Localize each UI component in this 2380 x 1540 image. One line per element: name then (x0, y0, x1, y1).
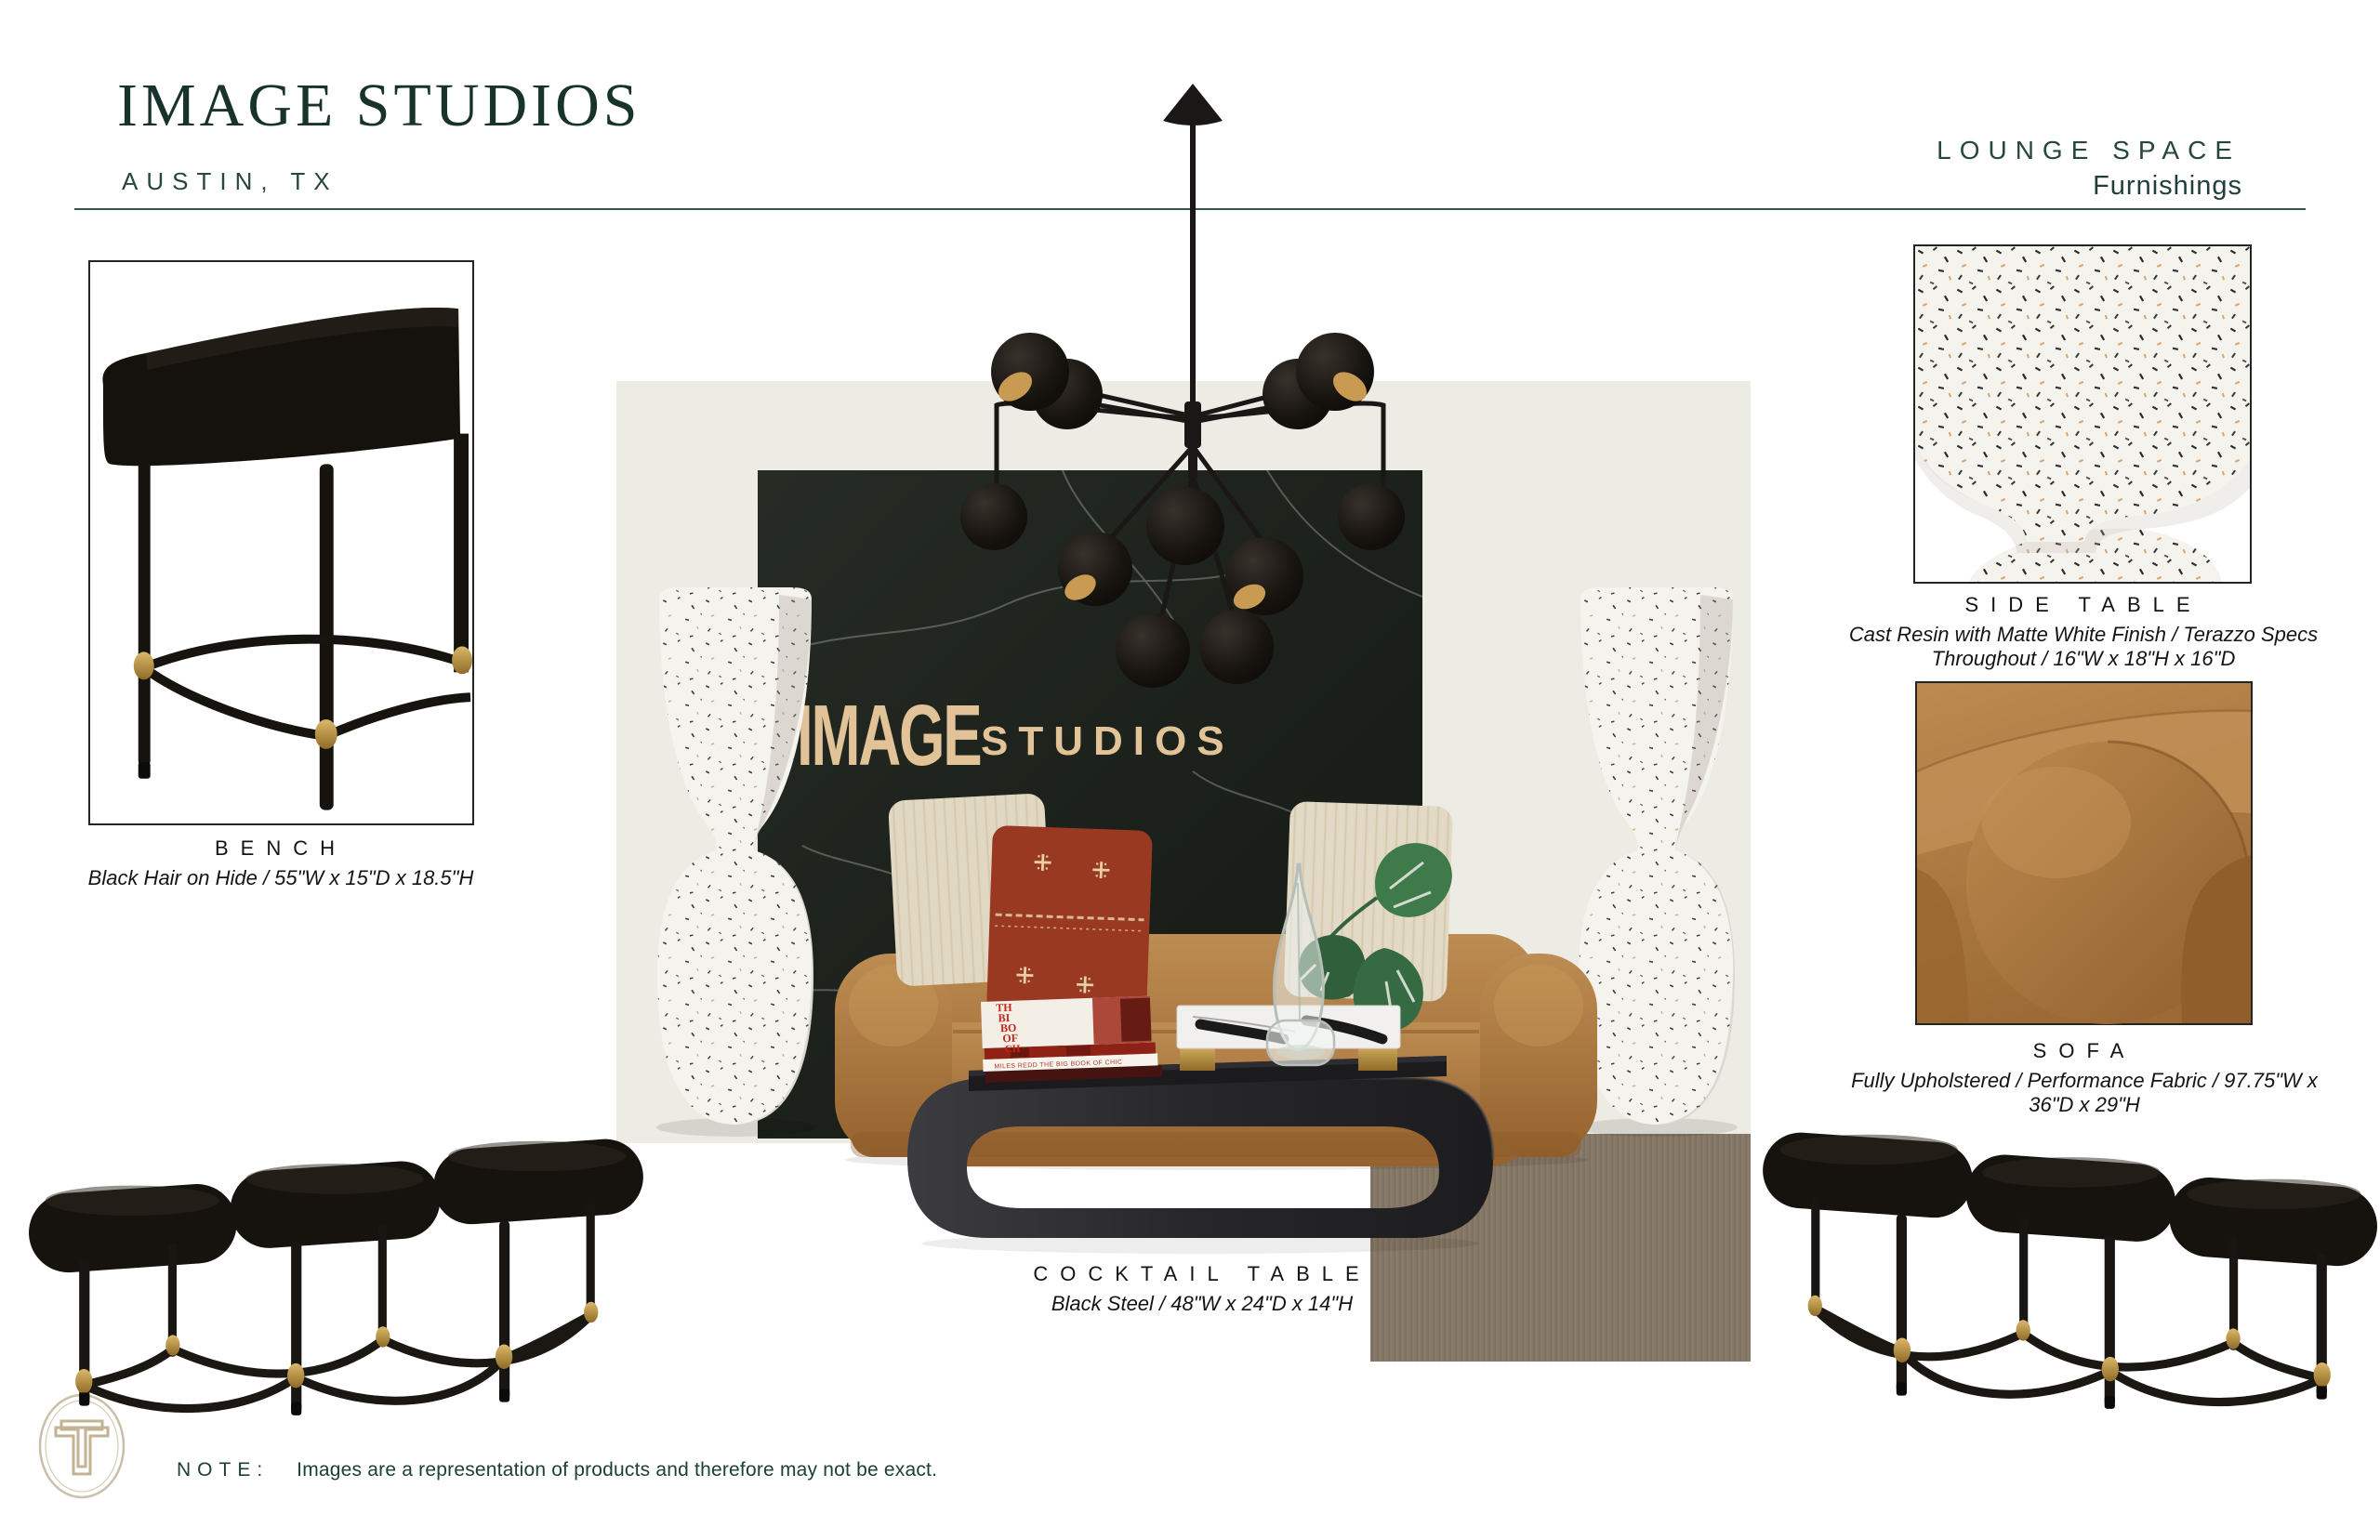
sofa-label: SOFA (1759, 1039, 2380, 1063)
chandelier-illustration (948, 74, 1432, 688)
side-table-product-card (1913, 244, 2252, 584)
side-table-closeup-illustration (1915, 246, 2250, 582)
bench-label: BENCH (0, 836, 606, 861)
bench-caption: BENCH Black Hair on Hide / 55"W x 15"D x… (0, 836, 606, 890)
page-title: IMAGE STUDIOS (117, 71, 641, 141)
moodboard-page: IMAGE STUDIOS AUSTIN, TX LOUNGE SPACE Fu… (0, 0, 2380, 1540)
side-table-spec-2: Throughout / 16"W x 18"H x 16"D (1758, 647, 2380, 671)
sofa-spec-1: Fully Upholstered / Performance Fabric /… (1759, 1069, 2380, 1093)
cocktail-table-spec: Black Steel / 48"W x 24"D x 14"H (877, 1292, 1527, 1316)
wall-logo-word-studios: STUDIOS (981, 718, 1235, 764)
chandelier-globes (960, 333, 1405, 688)
side-table-label: SIDE TABLE (1758, 593, 2380, 617)
sofa-closeup-illustration (1917, 683, 2251, 1023)
page-location: AUSTIN, TX (122, 167, 338, 196)
bench-closeup-illustration (90, 262, 472, 823)
side-table-caption: SIDE TABLE Cast Resin with Matte White F… (1758, 593, 2380, 671)
side-table-spec-1: Cast Resin with Matte White Finish / Ter… (1758, 623, 2380, 647)
note-label: NOTE: (177, 1459, 269, 1481)
note-text: Images are a representation of products … (297, 1459, 937, 1481)
section-subtitle: Furnishings (2093, 171, 2242, 202)
footer-note: NOTE:Images are a representation of prod… (177, 1459, 937, 1481)
sofa-product-card (1915, 681, 2253, 1025)
pillow-red (986, 825, 1153, 1024)
bench-full-right-illustration (1755, 1095, 2380, 1416)
bench-full-left-illustration (26, 1101, 651, 1423)
section-title: LOUNGE SPACE (1937, 136, 2241, 165)
book-stack: MILES REDD THE BIG BOOK OF CHIC TH BI BO… (981, 995, 1162, 1083)
wall-logo-word-image: IMAGE (797, 687, 980, 783)
book-cover-line: CH (1005, 1044, 1021, 1056)
cocktail-table-caption: COCKTAIL TABLE Black Steel / 48"W x 24"D… (877, 1262, 1527, 1316)
bench-product-card (88, 260, 474, 825)
bench-spec: Black Hair on Hide / 55"W x 15"D x 18.5"… (0, 866, 606, 890)
cocktail-table-label: COCKTAIL TABLE (877, 1262, 1527, 1286)
